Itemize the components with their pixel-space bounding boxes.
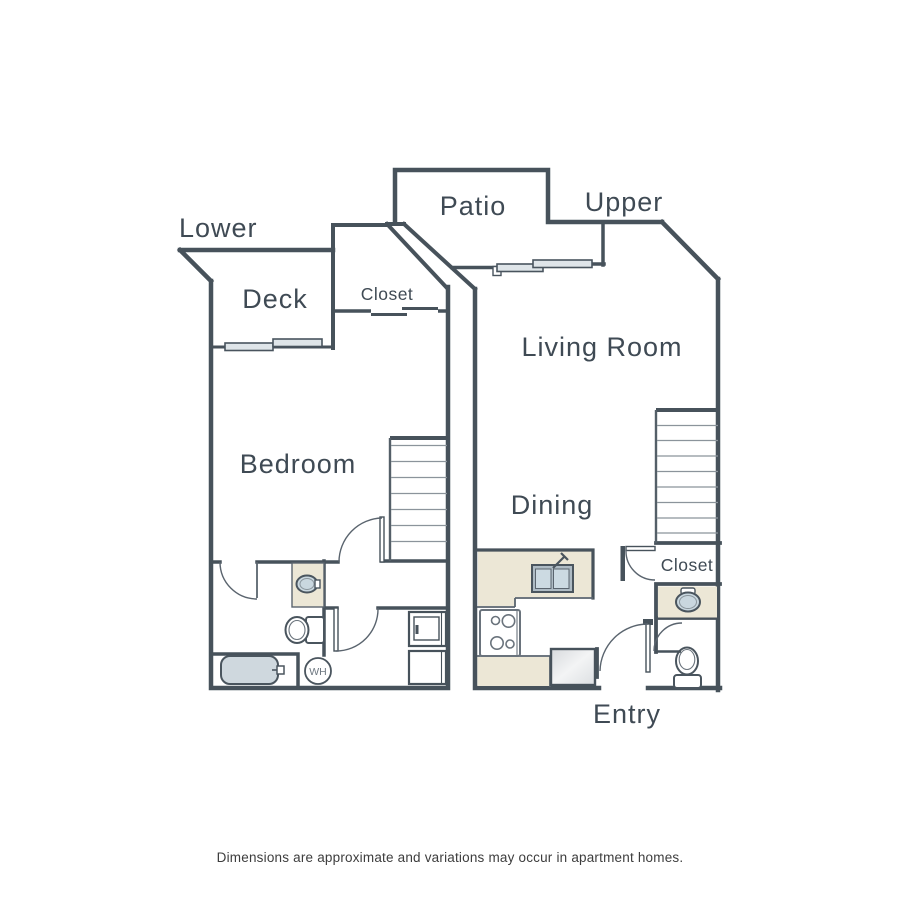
range-fixture: [480, 610, 520, 656]
label-entry: Entry: [593, 699, 661, 729]
upper-toilet-fixture: [674, 648, 701, 689]
door-jamb: [621, 546, 626, 581]
refrigerator-fixture: [551, 649, 595, 685]
label-bedroom: Bedroom: [240, 449, 357, 479]
lower-vanity: [292, 563, 324, 607]
bedroom-window: [225, 343, 273, 351]
bathroom-door: [220, 562, 257, 599]
stair-treads: [657, 426, 718, 534]
label-living-room: Living Room: [521, 332, 682, 362]
upper-stairs: [656, 410, 720, 543]
stair-treads: [391, 446, 447, 542]
bedroom-door: [339, 517, 384, 562]
floor-plan-svg: WH: [0, 0, 900, 900]
disclaimer-text: Dimensions are approximate and variation…: [217, 850, 684, 865]
utility-door: [334, 608, 378, 651]
lower-stairs: [390, 438, 448, 561]
label-deck: Deck: [242, 284, 308, 314]
lower-toilet-fixture: [286, 617, 325, 643]
upper-vanity: [658, 587, 717, 618]
upper-bathroom-door: [654, 623, 682, 652]
label-dining: Dining: [511, 490, 594, 520]
label-upper-closet: Closet: [661, 555, 714, 575]
bedroom-window: [273, 339, 322, 347]
label-lower-closet: Closet: [361, 284, 414, 304]
patio-sliding-door: [533, 260, 592, 268]
dryer-fixture: [409, 651, 446, 684]
upper-closet-door: [621, 546, 656, 581]
water-heater-label: WH: [309, 666, 327, 678]
faucet: [315, 580, 320, 588]
entry-door: [600, 619, 653, 672]
washer-fixture: [409, 612, 446, 646]
label-upper-unit: Upper: [585, 187, 664, 217]
label-patio: Patio: [440, 191, 507, 221]
lower-closet-sliding-doors: [371, 309, 438, 315]
label-lower-unit: Lower: [179, 213, 258, 243]
water-heater-fixture: WH: [305, 658, 331, 684]
floor-plan-page: WH: [0, 0, 900, 900]
bathtub-fixture: [221, 656, 284, 684]
